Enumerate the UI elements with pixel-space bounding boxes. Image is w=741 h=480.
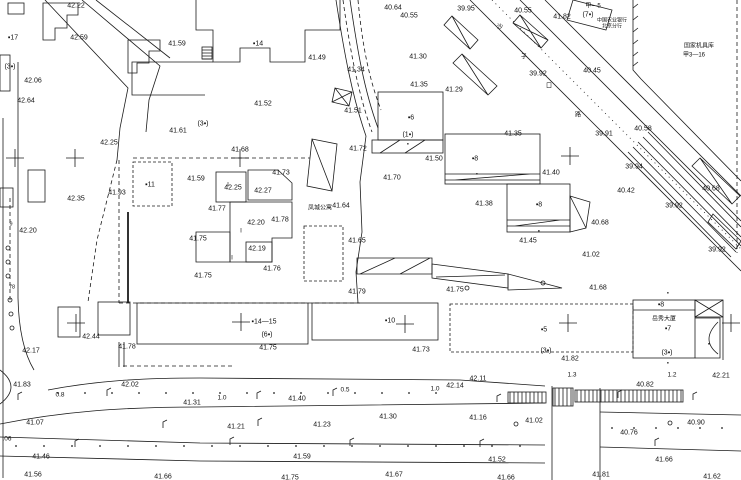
elevation-label: 42.19 — [248, 246, 266, 253]
chinese-text-label: 北京分行 — [602, 23, 622, 30]
elevation-label: 42.59 — [70, 35, 88, 42]
street-dot — [192, 392, 194, 394]
distance-label: .06 — [2, 436, 11, 443]
elevation-label: 42.44 — [82, 334, 100, 341]
elevation-label: 40.58 — [634, 126, 652, 133]
building-number-label: (3▪) — [197, 121, 208, 128]
elevation-label: 39.94 — [625, 164, 643, 171]
street-dot — [165, 392, 167, 394]
elevation-label: 41.59 — [293, 454, 311, 461]
point-marker-label: ▪ — [667, 291, 669, 297]
pole-symbol — [75, 439, 79, 447]
elevation-label: 39.92 — [708, 247, 726, 254]
chinese-text-label: 子 — [521, 54, 527, 61]
elevation-label: 41.76 — [263, 266, 281, 273]
street-dot — [300, 392, 302, 394]
distance-label: 1.0 — [430, 386, 439, 393]
elevation-label: 41.07 — [26, 420, 44, 427]
elevation-label: 41.31 — [183, 400, 201, 407]
elevation-label: 41.73 — [272, 170, 290, 177]
elevation-label: 41.66 — [497, 475, 515, 480]
elevation-label: 41.21 — [227, 424, 245, 431]
elevation-label: 40.90 — [687, 420, 705, 427]
manhole-symbol — [514, 422, 518, 426]
building-number-label: ▪8 — [536, 202, 542, 209]
street-dot — [699, 427, 701, 429]
elevation-label: 41.40 — [542, 170, 560, 177]
pole-symbol — [497, 394, 501, 402]
street-dot — [155, 445, 157, 447]
crosswalk-hatching — [508, 388, 683, 406]
elevation-label: 41.50 — [425, 156, 443, 163]
pole-symbol — [18, 392, 22, 400]
street-dot — [655, 427, 657, 429]
manhole-symbol — [6, 246, 10, 250]
distance-label: 1.2 — [667, 372, 676, 379]
elevation-label: 41.56 — [24, 472, 42, 479]
pole-symbol — [230, 437, 234, 445]
point-marker-label: 78 — [9, 285, 15, 291]
elevation-label: 40.42 — [617, 188, 635, 195]
street-dot — [211, 445, 213, 447]
utility-poles — [18, 388, 697, 447]
elevation-label: 41.46 — [32, 454, 50, 461]
elevation-label: 41.30 — [409, 54, 427, 61]
elevation-label: 40.76 — [620, 430, 638, 437]
elevation-label: 41.35 — [504, 131, 522, 138]
chinese-text-label: 甲3—16 — [683, 52, 706, 59]
elevation-label: 41.35 — [410, 82, 428, 89]
elevation-label: 40.68 — [591, 220, 609, 227]
pole-symbol — [350, 438, 354, 446]
grid-cross — [232, 313, 250, 331]
building-number-label: ▪11 — [145, 182, 155, 189]
manhole-symbol — [668, 421, 672, 425]
elevation-label: 41.67 — [385, 472, 403, 479]
building-number-label: (1▪) — [402, 132, 413, 139]
elevation-label: 41.68 — [231, 147, 249, 154]
elevation-label: 41.45 — [519, 238, 537, 245]
wall-tick-label: ∥ — [231, 255, 233, 261]
elevation-label: 41.82 — [553, 14, 571, 21]
elevation-label: 41.49 — [308, 55, 326, 62]
pole-symbol — [333, 388, 337, 396]
elevation-label: 41.73 — [412, 347, 430, 354]
building-number-label: ▪10 — [385, 318, 395, 325]
map-labels: 42.2242.59▪17(3▪)42.0642.6441.5942.2541.… — [2, 3, 729, 480]
manhole-symbol — [9, 312, 13, 316]
elevation-label: 41.75 — [189, 236, 207, 243]
street-dot — [71, 445, 73, 447]
elevation-label: 41.81 — [592, 472, 610, 479]
point-marker-label: ▪ — [667, 361, 669, 367]
street-dot — [295, 445, 297, 447]
elevation-label: 41.70 — [383, 175, 401, 182]
point-marker-label: 9 — [9, 222, 12, 228]
street-dot — [407, 445, 409, 447]
street-dot — [273, 392, 275, 394]
building-number-label: (6▪) — [261, 332, 272, 339]
street-dot — [408, 392, 410, 394]
point-marker-label: ▪ — [407, 142, 409, 148]
pole-symbol — [107, 388, 111, 396]
pole-symbol — [258, 418, 262, 426]
elevation-label: 42.27 — [254, 188, 272, 195]
elevation-label: 41.79 — [348, 289, 366, 296]
street-dot — [354, 392, 356, 394]
grid-cross — [66, 149, 84, 167]
chinese-text-label: 中国农业银行 — [597, 17, 627, 24]
chinese-text-label: 国家机具库 — [684, 42, 714, 50]
pole-symbol — [618, 390, 622, 398]
elevation-label: 42.17 — [22, 348, 40, 355]
pole-symbol — [163, 420, 167, 428]
building-number-label: ▪6 — [408, 115, 414, 122]
elevation-label: 41.78 — [271, 217, 289, 224]
point-marker-label: ▪ — [708, 342, 710, 348]
street-dot — [677, 427, 679, 429]
grid-cross — [396, 315, 414, 333]
elevation-label: 40.82 — [636, 382, 654, 389]
elevation-label: 41.75 — [446, 287, 464, 294]
street-dot — [183, 445, 185, 447]
street-dot — [246, 392, 248, 394]
street-dot — [323, 445, 325, 447]
elevation-label: 42.02 — [121, 382, 139, 389]
chinese-text-label: 沙 — [497, 24, 503, 31]
elevation-label: 41.66 — [655, 457, 673, 464]
elevation-label: 40.64 — [384, 5, 402, 12]
elevation-label: 42.64 — [17, 98, 35, 105]
elevation-label: 41.29 — [445, 87, 463, 94]
elevation-label: 41.77 — [208, 206, 226, 213]
pole-symbol — [693, 392, 697, 400]
street-dot — [267, 445, 269, 447]
distance-label: 1.0 — [217, 395, 226, 402]
street-dot — [611, 427, 613, 429]
building-number-label: (7▪) — [582, 12, 593, 19]
street-dot — [381, 392, 383, 394]
elevation-label: 41.72 — [349, 146, 367, 153]
street-dot — [15, 445, 17, 447]
elevation-label: 41.83 — [13, 382, 31, 389]
elevation-label: 41.02 — [582, 252, 600, 259]
elevation-label: 41.93 — [108, 190, 126, 197]
manhole-symbol — [10, 326, 14, 330]
building-number-label: ▪14—15 — [251, 319, 276, 326]
street-dot — [379, 445, 381, 447]
grid-cross — [559, 314, 577, 332]
distance-label: 0.8 — [55, 392, 64, 399]
elevation-label: 42.20 — [19, 228, 37, 235]
elevation-label: 42.11 — [470, 376, 487, 383]
street-dot — [435, 445, 437, 447]
elevation-label: 41.34 — [347, 67, 365, 74]
street-dot — [138, 392, 140, 394]
street-dot — [721, 427, 723, 429]
elevation-label: 41.78 — [118, 344, 136, 351]
distance-label: 0.5 — [340, 387, 349, 394]
elevation-label: 42.06 — [24, 78, 42, 85]
street-dot — [351, 445, 353, 447]
elevation-label: 41.61 — [169, 128, 187, 135]
wall-tick-label: ∥ — [240, 228, 242, 234]
elevation-label: 41.59 — [187, 176, 205, 183]
street-dot — [84, 392, 86, 394]
elevation-label: 41.59 — [168, 41, 186, 48]
pole-symbol — [480, 439, 484, 447]
elevation-label: 41.52 — [488, 457, 506, 464]
street-dot — [99, 445, 101, 447]
elevation-label: 42.14 — [446, 383, 464, 390]
grid-cross — [561, 147, 579, 165]
street-dot — [519, 445, 521, 447]
street-dot — [111, 392, 113, 394]
grid-crosses — [6, 147, 740, 333]
building-number-label: ▪17 — [8, 35, 18, 42]
elevation-label: 41.64 — [332, 203, 350, 210]
elevation-label: 41.75 — [281, 475, 299, 480]
elevation-label: 39.92 — [529, 71, 547, 78]
elevation-label: 41.75 — [194, 273, 212, 280]
chinese-text-label: 甲—5 — [585, 3, 601, 10]
elevation-label: 40.55 — [400, 13, 418, 20]
elevation-label: 39.92 — [665, 203, 683, 210]
survey-map-canvas: 42.2242.59▪17(3▪)42.0642.6441.5942.2541.… — [0, 0, 741, 480]
elevation-label: 41.51 — [344, 108, 362, 115]
pole-symbol — [257, 391, 261, 399]
building-number-label: ▪8 — [658, 302, 664, 309]
manholes — [6, 246, 672, 426]
topographic-survey-map: 42.2242.59▪17(3▪)42.0642.6441.5942.2541.… — [0, 0, 741, 480]
elevation-label: 41.82 — [561, 356, 579, 363]
street-dot — [43, 445, 45, 447]
building-number-label: (3▪) — [4, 64, 15, 71]
manhole-symbol — [6, 260, 10, 264]
distance-label: 1.3 — [567, 372, 576, 379]
elevation-label: 41.38 — [475, 201, 493, 208]
point-marker-label: ▪ — [476, 172, 478, 178]
street-dot — [463, 445, 465, 447]
street-dot — [327, 392, 329, 394]
building-number-label: ▪5 — [541, 327, 547, 334]
elevation-label: 41.52 — [254, 101, 272, 108]
chinese-text-label: 路 — [575, 111, 581, 119]
elevation-label: 41.23 — [313, 422, 331, 429]
chinese-text-label: 岳秀大厦 — [652, 315, 676, 323]
manhole-symbol — [465, 286, 469, 290]
building-number-label: (3▪) — [540, 348, 551, 355]
street-dot — [491, 445, 493, 447]
elevation-label: 39.91 — [595, 131, 613, 138]
building-number-label: ▪7 — [665, 326, 671, 333]
elevation-label: 42.35 — [67, 196, 85, 203]
grid-cross — [67, 314, 85, 332]
elevation-label: 42.25 — [100, 140, 118, 147]
elevation-label: 42.22 — [67, 3, 85, 10]
elevation-label: 41.75 — [259, 345, 277, 352]
elevation-label: 41.30 — [379, 414, 397, 421]
grid-cross — [6, 149, 24, 167]
elevation-label: 40.55 — [514, 8, 532, 15]
building-number-label: ▪8 — [472, 156, 478, 163]
chinese-text-label: 口 — [546, 83, 552, 90]
pole-symbol — [655, 438, 659, 446]
elevation-label: 40.68 — [702, 186, 720, 193]
elevation-label: 41.16 — [469, 415, 487, 422]
point-marker-label: ▪ — [538, 229, 540, 235]
elevation-label: 41.65 — [348, 238, 366, 245]
grid-cross — [722, 314, 740, 332]
map-linework — [0, 0, 741, 480]
elevation-label: 41.40 — [288, 396, 306, 403]
manhole-symbol — [6, 274, 10, 278]
chinese-text-label: 凤城公寓 — [308, 204, 332, 212]
elevation-label: 42.20 — [247, 220, 265, 227]
street-dot — [239, 445, 241, 447]
elevation-label: 41.66 — [154, 474, 172, 480]
street-dot — [127, 445, 129, 447]
elevation-label: 42.21 — [712, 373, 730, 380]
elevation-label: 41.62 — [703, 474, 721, 480]
elevation-label: 39.95 — [457, 6, 475, 13]
elevation-label: 41.02 — [525, 418, 543, 425]
elevation-label: 41.68 — [589, 285, 607, 292]
building-number-label: (3▪) — [661, 350, 672, 357]
building-number-label: ▪14 — [253, 41, 263, 48]
elevation-label: 40.45 — [583, 68, 601, 75]
